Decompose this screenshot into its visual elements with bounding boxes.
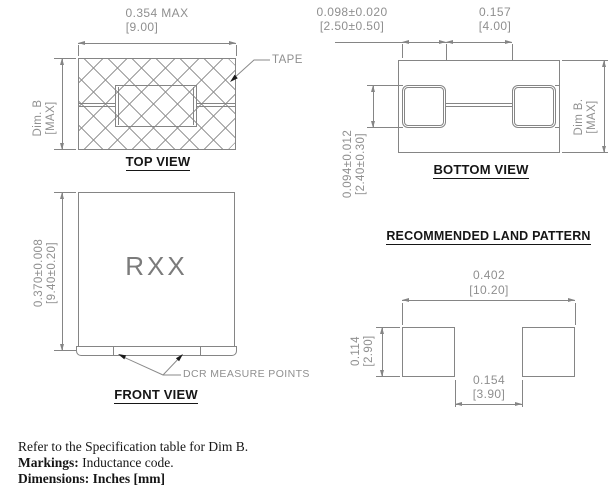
lead-wire — [78, 103, 115, 107]
extension-line — [376, 327, 400, 328]
extension-line — [54, 58, 76, 59]
top-view-height-dim: Dim. B [MAX] — [32, 100, 58, 137]
bottom-view-pad-height-dim: 0.094±0.012 [2.40±0.30] — [342, 130, 368, 198]
dim-line — [604, 60, 605, 153]
note-spec-table: Refer to the Specification table for Dim… — [18, 439, 248, 455]
top-view-width-dim-inches: 0.354 MAX — [78, 6, 236, 20]
arrow-up-icon — [380, 327, 384, 334]
bottom-view-height-dim: Dim B. [MAX] — [573, 99, 599, 136]
note-dimensions: Dimensions: Inches [mm] — [18, 471, 248, 487]
extension-line — [575, 303, 576, 325]
land-pattern-pad-height-dim: 0.114 [2.90] — [350, 335, 376, 366]
dim-line — [402, 300, 575, 301]
arrow-left-icon — [446, 40, 453, 44]
bottom-view-title: BOTTOM VIEW — [401, 162, 561, 177]
bottom-view-height-dim-line2: [MAX] — [586, 99, 599, 136]
extension-line — [367, 85, 400, 86]
top-view-width-dim-mm: [9.00] — [62, 20, 222, 34]
land-pattern-gap-inches: 0.154 — [449, 373, 529, 387]
bottom-view-right-pad — [512, 85, 556, 128]
arrow-up-icon — [60, 58, 64, 65]
extension-line — [78, 45, 79, 56]
arrow-left-icon — [402, 40, 409, 44]
inductance-code-marking: RXX — [78, 251, 235, 282]
dcr-leader-line — [119, 355, 182, 375]
bottom-view-pad-width-inches: 0.098±0.020 — [310, 5, 394, 19]
bottom-view-gap-mm: [4.00] — [455, 19, 535, 33]
dimension-drawing-sheet: 0.354 MAX [9.00] Dim. B [MAX] TAPE TOP V… — [0, 0, 616, 494]
end-cap-line — [118, 87, 119, 125]
bottom-view-pad-height-mm: [2.40±0.30] — [355, 130, 368, 198]
bottom-view-pad-width-mm: [2.50±0.50] — [310, 19, 394, 33]
land-pattern-pad-height-mm: [2.90] — [363, 335, 376, 366]
land-pattern-left-pad — [402, 327, 455, 377]
front-view-height-dim-inches: 0.370±0.008 — [33, 239, 46, 307]
land-pattern-right-pad — [522, 327, 575, 377]
top-view-title: TOP VIEW — [78, 154, 238, 169]
note-markings: Markings: Inductance code. — [18, 455, 248, 471]
front-view-height-dim-mm: [9.40±0.20] — [46, 239, 59, 307]
dcr-measure-points-label: DCR MEASURE POINTS — [183, 367, 310, 381]
arrow-right-icon — [515, 402, 522, 406]
arrow-left-icon — [402, 298, 409, 302]
extension-line — [54, 149, 76, 150]
extension-line — [562, 152, 608, 153]
extension-line — [54, 350, 76, 351]
land-pattern-title: RECOMMENDED LAND PATTERN — [378, 229, 599, 243]
dim-line — [335, 42, 512, 43]
extension-line — [402, 44, 403, 58]
arrow-left-icon — [78, 41, 85, 45]
pad-stub-line — [555, 127, 560, 128]
bottom-view-pad-height-inches: 0.094±0.012 — [342, 130, 355, 198]
arrow-up-icon — [602, 60, 606, 67]
land-pattern-pad-height-inches: 0.114 — [350, 335, 363, 366]
pad-inner-line — [404, 87, 444, 126]
front-view-height-dim: 0.370±0.008 [9.40±0.20] — [33, 239, 59, 307]
extension-line — [376, 376, 400, 377]
extension-line — [455, 380, 456, 407]
bottom-view-left-pad — [402, 85, 446, 128]
extension-line — [54, 192, 76, 193]
lead-wire — [197, 103, 236, 107]
extension-line — [562, 60, 608, 61]
bottom-view-gap-inches: 0.157 — [455, 5, 535, 19]
top-view-inner-component — [115, 85, 197, 127]
lead-wire — [446, 103, 512, 107]
land-pattern-overall-mm: [10.20] — [449, 283, 529, 297]
extension-line — [402, 303, 403, 325]
arrow-right-icon — [229, 41, 236, 45]
bottom-view-height-dim-line1: Dim B. — [573, 99, 586, 136]
arrow-right-icon — [505, 40, 512, 44]
arrow-right-icon — [568, 298, 575, 302]
terminal-tick — [113, 347, 114, 355]
pad-stub-line — [555, 85, 560, 86]
land-pattern-gap-mm: [3.90] — [449, 387, 529, 401]
pad-inner-line — [514, 87, 554, 126]
dim-line — [78, 43, 236, 44]
arrow-up-icon — [371, 85, 375, 92]
arrow-right-icon — [439, 40, 446, 44]
extension-line — [236, 45, 237, 56]
extension-line — [522, 380, 523, 407]
end-cap-line — [193, 87, 194, 125]
drawing-notes: Refer to the Specification table for Dim… — [18, 439, 248, 487]
tape-label: TAPE — [272, 53, 303, 67]
front-view-title: FRONT VIEW — [76, 387, 236, 402]
top-view-height-dim-line1: Dim. B — [32, 100, 45, 137]
extension-line — [367, 127, 400, 128]
top-view-height-dim-line2: [MAX] — [45, 100, 58, 137]
dim-line — [62, 58, 63, 150]
front-view-base-strip — [76, 346, 237, 356]
tape-leader-line — [233, 60, 270, 79]
terminal-tick — [200, 347, 201, 355]
dim-line — [455, 404, 522, 405]
arrow-up-icon — [60, 192, 64, 199]
arrow-left-icon — [455, 402, 462, 406]
land-pattern-overall-inches: 0.402 — [449, 268, 529, 282]
dim-line — [62, 192, 63, 351]
